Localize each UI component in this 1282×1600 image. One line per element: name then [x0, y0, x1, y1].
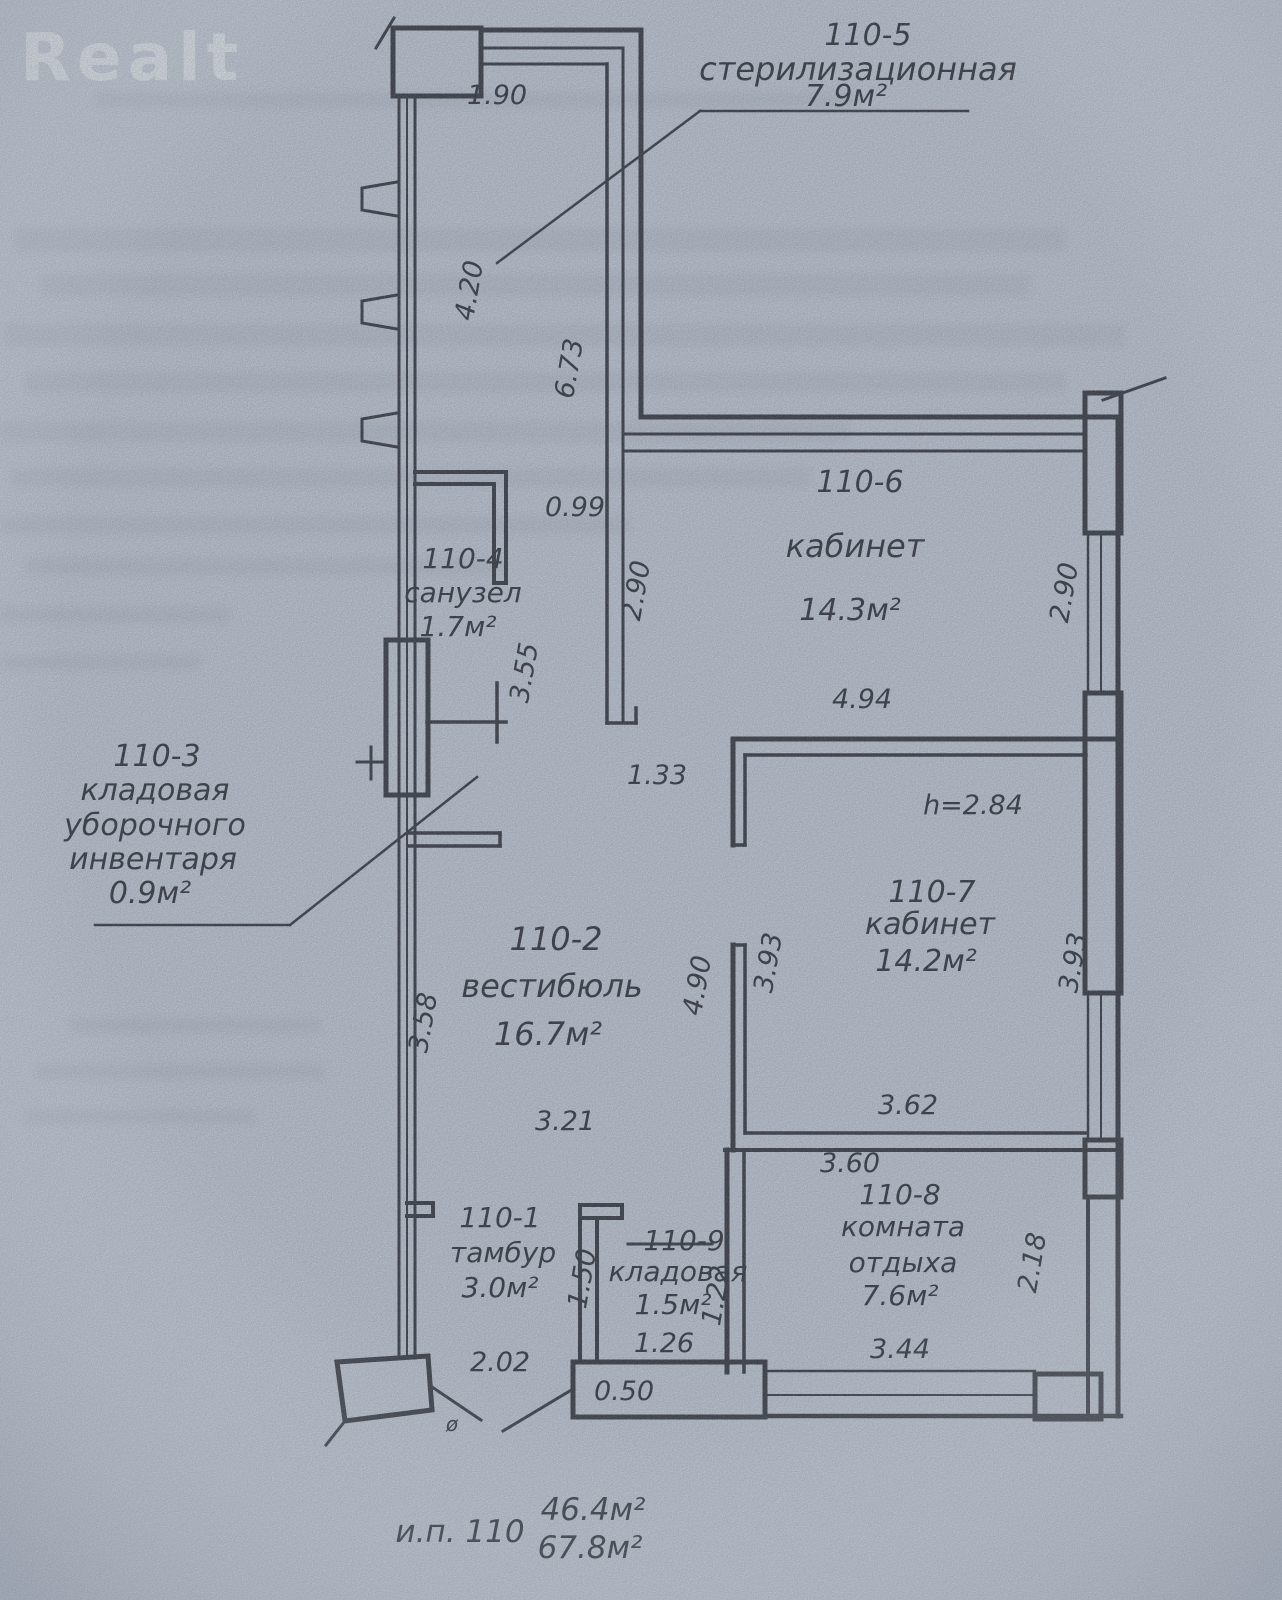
scanned-floor-plan-page: Realt: [0, 0, 1282, 1600]
floor-plan-drawing: Realt: [0, 0, 1282, 1600]
photo-vignette: [0, 0, 1282, 1600]
